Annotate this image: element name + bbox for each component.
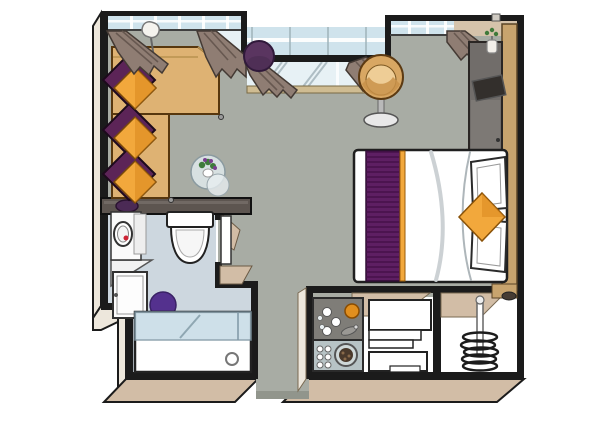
living-window-glass — [105, 15, 244, 31]
towel-stack — [390, 366, 420, 372]
desk-unit — [469, 42, 506, 154]
bottom-wall — [306, 372, 524, 379]
glass — [325, 354, 331, 360]
desk-handle — [496, 138, 500, 142]
floor-plan-image — [0, 0, 600, 422]
glass — [317, 362, 323, 368]
towel-stack — [369, 300, 431, 330]
bathroom-door — [221, 216, 231, 264]
towel-shelves — [369, 300, 431, 372]
slippers — [502, 292, 516, 300]
shower-glass-screen — [135, 312, 251, 340]
wall-fixture — [492, 14, 500, 21]
double-bed — [354, 150, 507, 282]
cup — [332, 318, 341, 327]
living-top-wall — [101, 11, 247, 16]
kitchen-left-wall — [306, 286, 313, 379]
tub-chair — [359, 55, 403, 127]
tub-drain — [226, 353, 238, 365]
kitchen-closet-wall — [433, 286, 441, 379]
right-wall — [517, 15, 524, 379]
round-pouf — [244, 41, 274, 71]
table-lower — [207, 174, 229, 196]
bathtub — [135, 312, 251, 372]
bedroom-top-wall — [385, 15, 524, 21]
floor-plan-canvas — [0, 0, 600, 422]
glass — [317, 346, 323, 352]
bathroom-bottom-face — [104, 379, 258, 402]
accent-pillows — [103, 54, 156, 203]
minibar-counter — [313, 298, 363, 371]
cabinet-handle — [114, 293, 118, 297]
left-wall — [101, 11, 108, 310]
rod-cap — [476, 296, 484, 304]
left-wall-face — [93, 13, 101, 318]
entry-threshold — [256, 391, 309, 399]
bowl — [345, 304, 359, 318]
glass — [325, 346, 331, 352]
kitchen-left-face — [298, 288, 306, 391]
towel-stack — [369, 340, 413, 348]
glass — [325, 362, 331, 368]
cup — [323, 308, 332, 317]
lamp-body — [487, 40, 497, 53]
kitchen-closet-bottom-face — [283, 379, 524, 402]
sofa-caster — [169, 198, 174, 203]
toilet-tank — [167, 212, 213, 227]
kitchen-top-wall — [306, 286, 440, 293]
vase — [203, 169, 213, 177]
sofa-caster — [219, 115, 224, 120]
living-window — [105, 15, 244, 31]
vanity-side — [134, 214, 146, 254]
towel-stack — [369, 330, 421, 340]
chair-base — [364, 113, 398, 127]
mirror-dot — [124, 236, 129, 241]
throw-trim — [400, 151, 405, 281]
glass — [317, 354, 323, 360]
